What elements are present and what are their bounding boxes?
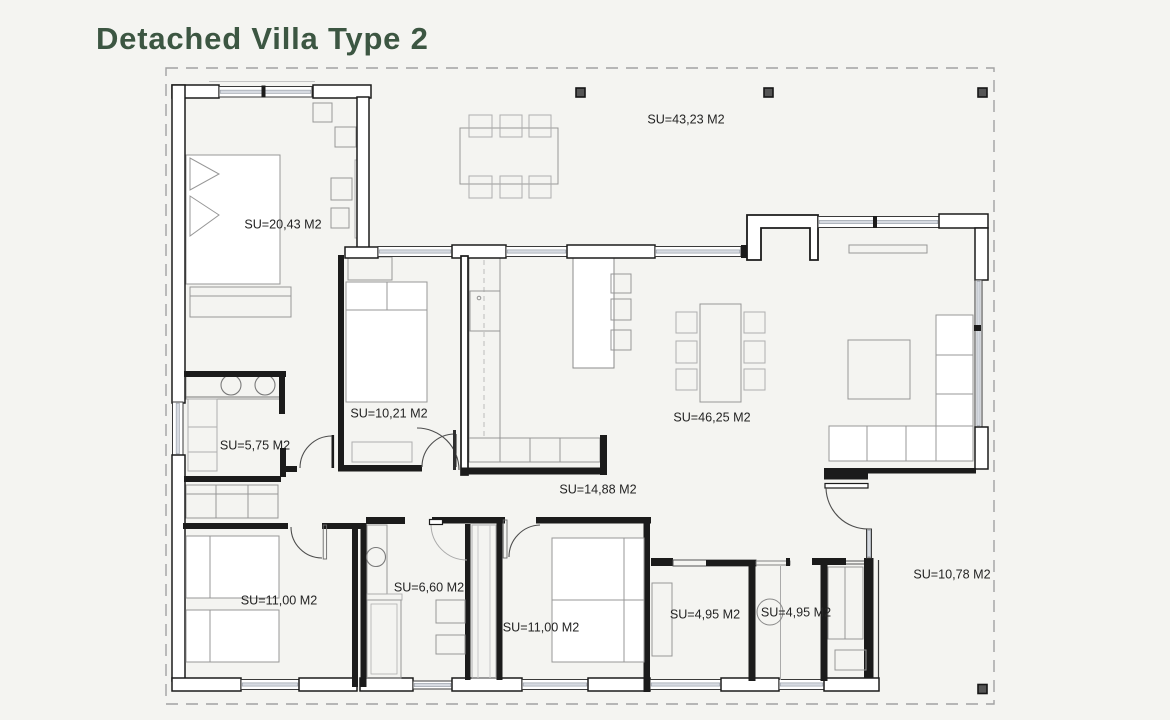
svg-text:SU=5,75 M2: SU=5,75 M2: [220, 439, 290, 453]
svg-text:SU=46,25 M2: SU=46,25 M2: [673, 411, 750, 425]
svg-text:SU=10,78 M2: SU=10,78 M2: [913, 568, 990, 582]
svg-text:Detached Villa Type 2: Detached Villa Type 2: [96, 21, 429, 56]
svg-text:SU=6,60 M2: SU=6,60 M2: [394, 581, 464, 595]
svg-text:SU=20,43 M2: SU=20,43 M2: [244, 218, 321, 232]
svg-text:SU=11,00 M2: SU=11,00 M2: [241, 594, 317, 608]
svg-text:SU=10,21 M2: SU=10,21 M2: [350, 407, 427, 421]
svg-text:SU=4,95 M2: SU=4,95 M2: [761, 606, 831, 620]
svg-text:SU=43,23 M2: SU=43,23 M2: [647, 113, 724, 127]
svg-text:SU=11,00 M2: SU=11,00 M2: [503, 621, 579, 635]
svg-text:SU=4,95 M2: SU=4,95 M2: [670, 608, 740, 622]
svg-text:SU=14,88 M2: SU=14,88 M2: [559, 483, 636, 497]
